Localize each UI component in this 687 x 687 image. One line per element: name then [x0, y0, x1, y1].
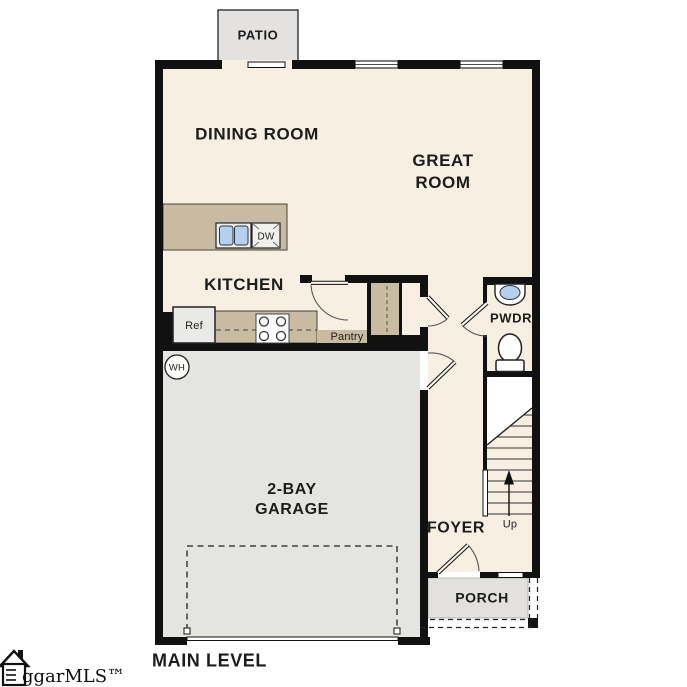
- island-sink: [216, 223, 251, 248]
- great-room-label-line2: ROOM: [415, 173, 470, 192]
- garage-label-line1: 2-BAY: [267, 481, 317, 498]
- dining-room-label: DINING ROOM: [195, 125, 319, 144]
- dishwasher-label: DW: [257, 232, 274, 243]
- great-room-label-line1: GREAT: [412, 151, 473, 170]
- foyer-label: FOYER: [427, 520, 485, 537]
- garage-label-line2: GARAGE: [255, 501, 329, 518]
- mls-logo: ggarMLS™: [0, 650, 125, 687]
- floorplan-image: PATIO DINING ROOM GREAT ROOM KITCHEN PWD…: [0, 0, 687, 687]
- porch-label: PORCH: [455, 590, 509, 606]
- water-heater-label: WH: [169, 363, 185, 374]
- level-title: MAIN LEVEL: [152, 651, 267, 671]
- sink-basin-left: [220, 226, 234, 245]
- powder-room-label: PWDR: [490, 311, 532, 326]
- foyer-sidelight-window: [498, 573, 523, 578]
- coat-closet-floor: [371, 283, 399, 335]
- stairs-up-label: Up: [503, 519, 517, 531]
- garage-door-track-right: [394, 628, 400, 634]
- garage-overhead-door: [187, 637, 398, 641]
- powder-sink-basin: [500, 286, 520, 300]
- pantry-label: Pantry: [331, 331, 364, 343]
- patio-label: PATIO: [238, 28, 279, 43]
- stair-railing: [483, 470, 488, 516]
- floorplan-svg: PATIO DINING ROOM GREAT ROOM KITCHEN PWD…: [0, 0, 687, 687]
- powder-sink: [495, 284, 525, 305]
- garage-door-track-left: [184, 628, 190, 634]
- patio-sliding-door: [248, 62, 285, 68]
- sink-basin-right: [235, 226, 249, 245]
- refrigerator-label: Ref: [185, 320, 203, 332]
- mls-logo-text: ggarMLS™: [22, 666, 125, 687]
- kitchen-label: KITCHEN: [204, 275, 284, 294]
- range-stove: [256, 314, 289, 343]
- toilet: [496, 334, 524, 372]
